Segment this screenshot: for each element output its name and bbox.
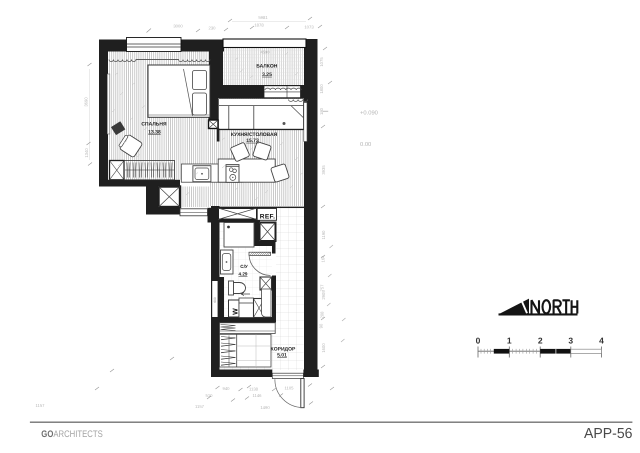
- svg-text:1146: 1146: [252, 393, 262, 398]
- svg-text:С/У: С/У: [240, 264, 248, 269]
- svg-text:1600: 1600: [321, 343, 326, 353]
- svg-text:13.38: 13.38: [148, 130, 161, 136]
- svg-text:15.73: 15.73: [246, 138, 259, 144]
- svg-text:3000: 3000: [173, 24, 183, 29]
- svg-text:0: 0: [476, 336, 481, 346]
- svg-text:3935: 3935: [321, 165, 326, 175]
- svg-text:0.00: 0.00: [360, 141, 371, 148]
- svg-text:4590: 4590: [261, 50, 271, 55]
- svg-text:230: 230: [209, 26, 217, 31]
- svg-text:1878: 1878: [254, 23, 264, 28]
- svg-text:1: 1: [507, 336, 512, 346]
- svg-text:1138: 1138: [249, 387, 259, 392]
- svg-text:3: 3: [568, 336, 573, 346]
- svg-text:757: 757: [320, 284, 325, 292]
- svg-text:90: 90: [319, 323, 324, 328]
- svg-text:4: 4: [599, 336, 604, 346]
- svg-text:1075: 1075: [319, 57, 324, 67]
- svg-text:1157: 1157: [35, 403, 45, 408]
- svg-text:1190: 1190: [321, 230, 326, 240]
- svg-text:1340: 1340: [84, 148, 89, 158]
- svg-text:940: 940: [223, 386, 231, 391]
- svg-text:1105: 1105: [284, 385, 294, 390]
- svg-text:1157: 1157: [195, 404, 205, 409]
- svg-text:1490: 1490: [260, 405, 270, 410]
- svg-text:GOARCHITECTS: GOARCHITECTS: [41, 429, 103, 440]
- svg-text:600: 600: [213, 297, 217, 303]
- svg-text:APP-56: APP-56: [584, 426, 633, 442]
- svg-text:+0.090: +0.090: [360, 109, 378, 116]
- svg-text:3690: 3690: [84, 97, 89, 107]
- svg-text:2: 2: [538, 336, 543, 346]
- svg-text:5981: 5981: [258, 15, 268, 20]
- svg-text:208: 208: [320, 311, 325, 319]
- svg-text:4.29: 4.29: [239, 272, 248, 277]
- svg-text:СПАЛЬНЯ: СПАЛЬНЯ: [141, 122, 167, 128]
- svg-text:1073: 1073: [304, 25, 314, 30]
- svg-text:БАЛКОН: БАЛКОН: [256, 64, 278, 70]
- svg-text:164: 164: [321, 255, 326, 263]
- svg-text:5.01: 5.01: [277, 352, 287, 358]
- svg-text:REF.: REF.: [260, 213, 276, 220]
- svg-text:1800: 1800: [319, 84, 324, 94]
- svg-text:3.25: 3.25: [262, 72, 272, 78]
- svg-text:W: W: [233, 308, 240, 315]
